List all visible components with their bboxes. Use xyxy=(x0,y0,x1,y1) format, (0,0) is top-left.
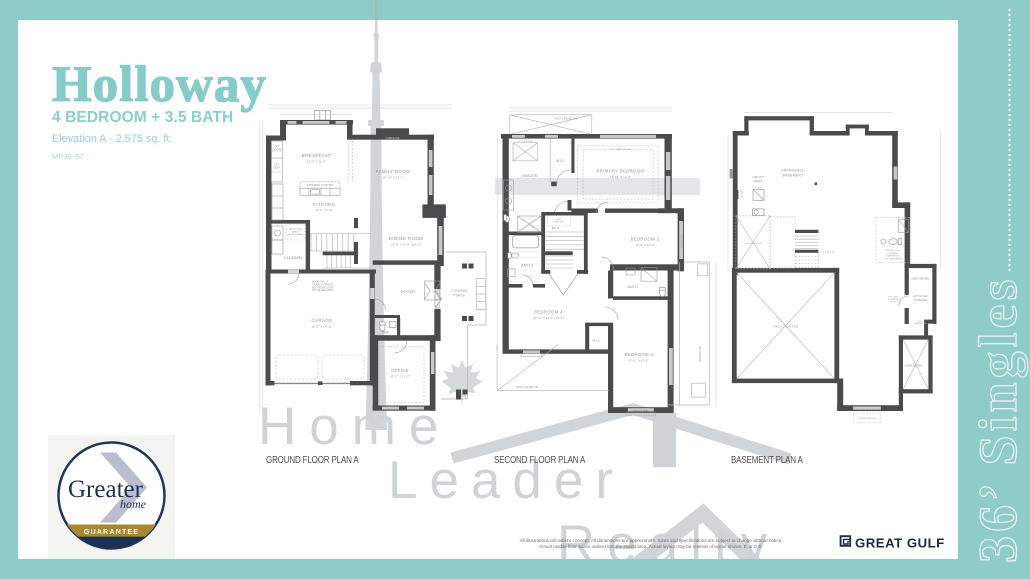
svg-text:BATH 3: BATH 3 xyxy=(521,264,533,268)
svg-text:(AS REQUIRED): (AS REQUIRED) xyxy=(287,233,304,236)
svg-text:WINDOW SEAT: WINDOW SEAT xyxy=(633,410,649,413)
svg-text:FRENCH DR: FRENCH DR xyxy=(681,235,683,248)
svg-text:UNEXCAVATED: UNEXCAVATED xyxy=(911,278,929,281)
svg-text:AREA: AREA xyxy=(754,179,762,183)
svg-text:FOYER: FOYER xyxy=(401,289,415,294)
svg-text:18'-2" X 19'-11": 18'-2" X 19'-11" xyxy=(311,325,332,329)
svg-text:BATH 2: BATH 2 xyxy=(628,285,639,289)
svg-text:14'-0" X 10'-0": 14'-0" X 10'-0" xyxy=(307,160,327,164)
svg-text:UNFINISHED: UNFINISHED xyxy=(781,169,805,173)
svg-text:EXTENDED COUNTER: EXTENDED COUNTER xyxy=(307,184,334,187)
svg-text:BREAKFAST: BREAKFAST xyxy=(302,153,331,158)
svg-text:FIREPLACE: FIREPLACE xyxy=(386,137,400,140)
svg-text:16'R @ 7 7/8": 16'R @ 7 7/8" xyxy=(822,252,836,254)
svg-text:C/W WATER AREA: C/W WATER AREA xyxy=(884,257,902,260)
svg-text:GRADING PERMITS: GRADING PERMITS xyxy=(312,283,334,286)
svg-text:13'-6" X 11'-0" (10'-4"): 13'-6" X 11'-0" (10'-4") xyxy=(391,243,421,247)
svg-text:UNEXCAVATED: UNEXCAVATED xyxy=(904,365,922,368)
svg-text:UNEXCAVATED: UNEXCAVATED xyxy=(772,325,799,329)
svg-text:ADDL: ADDL xyxy=(556,218,562,221)
svg-text:BEDROOM 4: BEDROOM 4 xyxy=(534,310,563,315)
svg-text:100 AMP: 100 AMP xyxy=(741,190,744,198)
svg-text:12'-0" X 10'-6": 12'-0" X 10'-6" xyxy=(635,243,655,247)
svg-text:STORAGE: STORAGE xyxy=(913,298,927,302)
svg-text:KITCHEN: KITCHEN xyxy=(313,202,335,207)
svg-text:COVERED: COVERED xyxy=(451,289,468,293)
svg-text:OPT SKYLIGHT: OPT SKYLIGHT xyxy=(517,141,534,143)
svg-text:OPT: OPT xyxy=(275,165,280,167)
svg-text:9'-11" X 10'-8": 9'-11" X 10'-8" xyxy=(629,359,648,363)
svg-text:SHELF: SHELF xyxy=(292,231,300,233)
svg-text:SHELVES: SHELVES xyxy=(554,222,564,224)
svg-text:OPT: OPT xyxy=(275,147,280,149)
svg-text:OFFICE: OFFICE xyxy=(391,368,409,373)
svg-text:W.I.C.: W.I.C. xyxy=(556,159,565,163)
svg-text:(BASEMENT): (BASEMENT) xyxy=(887,255,900,258)
svg-text:ROUGH-IN 3 PC: ROUGH-IN 3 PC xyxy=(885,250,901,252)
svg-text:DESK: DESK xyxy=(274,167,281,169)
svg-text:PORCH: PORCH xyxy=(454,294,467,298)
svg-text:PLUMBING: PLUMBING xyxy=(888,253,899,255)
svg-text:FURN: FURN xyxy=(756,187,762,189)
svg-text:ROOF LINE BELOW: ROOF LINE BELOW xyxy=(554,118,578,121)
svg-text:DINING ROOM: DINING ROOM xyxy=(389,236,424,241)
svg-text:12'-2" X 12'-2": 12'-2" X 12'-2" xyxy=(390,375,410,379)
svg-text:LAUNDRY: LAUNDRY xyxy=(284,255,303,260)
svg-text:DOOR: DOOR xyxy=(890,302,897,304)
svg-text:ENSUITE: ENSUITE xyxy=(523,174,538,178)
svg-text:HEADROOM: HEADROOM xyxy=(914,322,926,325)
svg-text:DOOR ONLY IF: DOOR ONLY IF xyxy=(312,282,329,284)
svg-text:ROOF BELOW: ROOF BELOW xyxy=(700,346,702,362)
svg-text:EGRESS WINDOW: EGRESS WINDOW xyxy=(858,418,876,420)
svg-text:PRIMARY BEDROOM: PRIMARY BEDROOM xyxy=(597,169,645,174)
svg-text:GUARANTEE: GUARANTEE xyxy=(84,527,139,536)
svg-text:ADDITIONAL: ADDITIONAL xyxy=(289,228,303,231)
svg-text:PWD: PWD xyxy=(382,331,390,335)
svg-text:18'-10" X 12'-1": 18'-10" X 12'-1" xyxy=(382,176,403,180)
svg-text:BEDROOM 3: BEDROOM 3 xyxy=(625,352,654,357)
svg-text:OPT TRAY CEILING: OPT TRAY CEILING xyxy=(611,148,631,151)
svg-text:13'-11" X 12'-6" (10'-2"): 13'-11" X 12'-6" (10'-2") xyxy=(533,316,565,320)
svg-text:ADDITIONAL STEPS: ADDITIONAL STEPS xyxy=(312,286,334,289)
svg-text:PANTRY: PANTRY xyxy=(272,148,282,151)
svg-text:GREAT GULF: GREAT GULF xyxy=(855,535,945,550)
svg-text:10'-0" X 9'-6": 10'-0" X 9'-6" xyxy=(315,208,333,212)
svg-text:W.I.C.: W.I.C. xyxy=(552,226,560,230)
svg-text:FAMILY ROOM: FAMILY ROOM xyxy=(376,169,411,174)
svg-text:ROOF LINE BELOW: ROOF LINE BELOW xyxy=(516,386,539,389)
svg-text:36’ Singles: 36’ Singles xyxy=(968,275,1028,563)
svg-text:BEDROOM 2: BEDROOM 2 xyxy=(631,237,660,242)
svg-text:GARAGE: GARAGE xyxy=(311,318,332,323)
svg-text:home: home xyxy=(120,497,147,511)
svg-text:MAY BE REQUIRED: MAY BE REQUIRED xyxy=(312,289,334,292)
svg-text:W.I.C.: W.I.C. xyxy=(592,339,600,343)
svg-text:16'-11" X 12'-8": 16'-11" X 12'-8" xyxy=(610,175,631,179)
svg-text:Realty: Realty xyxy=(557,515,779,559)
svg-text:LOW HEADROOM: LOW HEADROOM xyxy=(744,242,762,245)
svg-text:BASEMENT: BASEMENT xyxy=(782,174,803,178)
